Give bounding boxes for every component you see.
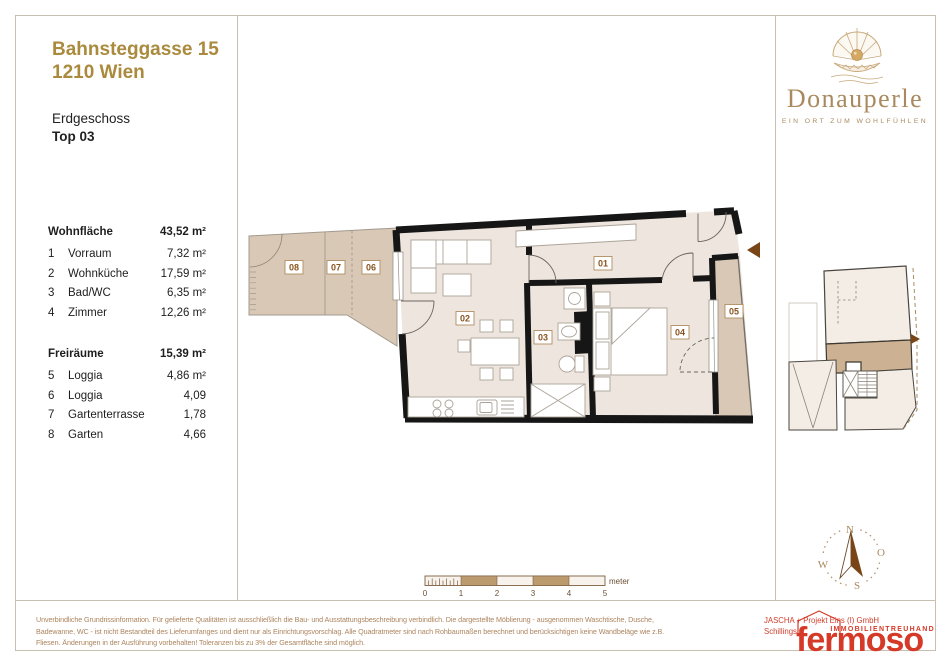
scale-tick: 4: [567, 589, 572, 598]
row-num: 3: [48, 287, 68, 299]
row-value: 7,32 m²: [167, 248, 206, 260]
outdoor-areas: [249, 228, 397, 346]
brand-tagline: EIN ORT ZUM WOHLFÜHLEN: [775, 118, 935, 125]
living-header-label: Wohnfläche: [48, 226, 160, 238]
kitchen-counter: [408, 397, 524, 417]
disclaimer-line: Fliesen. Änderungen in der Ausführung vo…: [36, 637, 736, 649]
compass-north: N: [846, 524, 854, 536]
row-name: Vorraum: [68, 248, 167, 260]
row-value: 6,35 m²: [167, 287, 206, 299]
table-row: 3 Bad/WC 6,35 m²: [48, 287, 206, 307]
room-label-01: 01: [598, 259, 608, 269]
disclaimer-line: Badewanne, WC - ist nicht Bestandteil de…: [36, 626, 736, 638]
room-label-03: 03: [538, 333, 548, 343]
room-label-02: 02: [460, 314, 470, 324]
scale-tick: 3: [531, 589, 536, 598]
row-name: Loggia: [68, 390, 184, 402]
address-line2: 1210 Wien: [52, 61, 219, 84]
row-name: Wohnküche: [68, 268, 161, 280]
open-header: Freiräume 15,39 m²: [48, 348, 206, 370]
area-table-living: Wohnfläche 43,52 m² 1 Vorraum 7,32 m² 2 …: [48, 226, 206, 327]
brand-name: Donauperle: [775, 84, 935, 114]
disclaimer: Unverbindliche Grundrissinformation. Für…: [36, 614, 736, 649]
open-header-value: 15,39 m²: [160, 348, 206, 360]
table-row: 8 Garten 4,66: [48, 429, 206, 449]
row-num: 8: [48, 429, 68, 441]
row-value: 17,59 m²: [161, 268, 206, 280]
scale-tick: 1: [459, 589, 464, 598]
row-name: Garten: [68, 429, 184, 441]
floor-label: Erdgeschoss: [52, 110, 130, 128]
living-header: Wohnfläche 43,52 m²: [48, 226, 206, 248]
compass-needle-dark: [851, 531, 863, 577]
row-value: 4,86 m²: [167, 370, 206, 382]
area-table-open: Freiräume 15,39 m² 5 Loggia 4,86 m² 6 Lo…: [48, 348, 206, 449]
room-label-05: 05: [729, 307, 739, 317]
scale-tick: 5: [603, 589, 608, 598]
floorplan-drawing: 01 02 03 04 05 06 07 08: [237, 198, 777, 468]
table-row: 6 Loggia 4,09: [48, 390, 206, 410]
row-name: Loggia: [68, 370, 167, 382]
room-label-06: 06: [366, 263, 376, 273]
room-label-08: 08: [289, 263, 299, 273]
table-row: 1 Vorraum 7,32 m²: [48, 248, 206, 268]
fermoso-logo: fermoso: [796, 623, 923, 657]
row-value: 1,78: [184, 409, 206, 421]
row-num: 6: [48, 390, 68, 402]
stairs-icon: [843, 371, 877, 397]
floor-unit-block: Erdgeschoss Top 03: [52, 110, 130, 146]
unit-label: Top 03: [52, 128, 130, 146]
room-label-07: 07: [331, 263, 341, 273]
row-num: 7: [48, 409, 68, 421]
row-value: 4,09: [184, 390, 206, 402]
row-name: Bad/WC: [68, 287, 167, 299]
pearl-shell-icon: [813, 18, 901, 86]
row-num: 4: [48, 307, 68, 319]
row-num: 5: [48, 370, 68, 382]
divider-footer: [15, 600, 935, 601]
floorplan-sheet: Bahnsteggasse 15 1210 Wien Erdgeschoss T…: [0, 0, 950, 671]
disclaimer-line: Unverbindliche Grundrissinformation. Für…: [36, 614, 736, 626]
address-title: Bahnsteggasse 15 1210 Wien: [52, 38, 219, 84]
highlighted-unit: [826, 340, 912, 373]
entrance-arrow-icon: [747, 242, 760, 258]
row-name: Gartenterrasse: [68, 409, 184, 421]
compass-needle: [840, 531, 851, 578]
compass-east: O: [877, 547, 885, 559]
row-value: 12,26 m²: [161, 307, 206, 319]
compass-rose: N O S W: [808, 516, 900, 600]
compass-south: S: [854, 580, 860, 592]
open-header-label: Freiräume: [48, 348, 160, 360]
row-value: 4,66: [184, 429, 206, 441]
living-header-value: 43,52 m²: [160, 226, 206, 238]
map-arrow-icon: [911, 334, 920, 344]
address-line1: Bahnsteggasse 15: [52, 38, 219, 61]
table-row: 2 Wohnküche 17,59 m²: [48, 268, 206, 288]
table-row: 4 Zimmer 12,26 m²: [48, 307, 206, 327]
scale-tick: 0: [423, 589, 428, 598]
row-name: Zimmer: [68, 307, 161, 319]
building-location-map: [785, 255, 935, 435]
table-row: 7 Gartenterrasse 1,78: [48, 409, 206, 429]
scale-bar: 0 1 2 3 4 5 meter: [418, 570, 648, 600]
table-row: 5 Loggia 4,86 m²: [48, 370, 206, 390]
compass-west: W: [818, 559, 829, 571]
scale-unit-label: meter: [609, 577, 630, 586]
row-num: 2: [48, 268, 68, 280]
scale-tick: 2: [495, 589, 500, 598]
room-label-04: 04: [675, 328, 685, 338]
row-num: 1: [48, 248, 68, 260]
